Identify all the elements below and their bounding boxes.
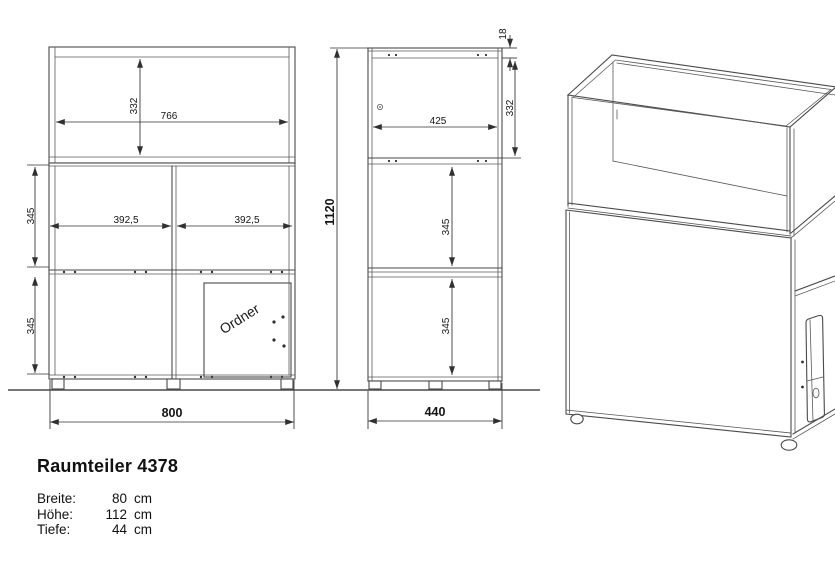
drawing-canvas: Ordner 332 766 345 392,5 392,5 345 800 bbox=[0, 0, 835, 455]
foot bbox=[489, 381, 501, 389]
foot bbox=[781, 440, 797, 450]
side-outline bbox=[368, 48, 502, 381]
foot bbox=[369, 381, 381, 389]
spec-row-hoehe: Höhe: 112 cm bbox=[37, 507, 152, 523]
front-dim-top-height: 332 bbox=[129, 97, 140, 114]
spec-row-tiefe: Tiefe: 44 cm bbox=[37, 522, 152, 538]
front-dim-left-width: 392,5 bbox=[113, 215, 138, 226]
foot bbox=[281, 379, 293, 389]
top-face bbox=[568, 55, 835, 127]
spec-unit: cm bbox=[127, 507, 152, 523]
technical-drawing-page: Ordner 332 766 345 392,5 392,5 345 800 bbox=[0, 0, 835, 567]
side-dim-total-depth: 440 bbox=[425, 405, 446, 419]
foot bbox=[167, 379, 180, 389]
side-dim-inner-depth: 425 bbox=[430, 116, 447, 127]
foot bbox=[571, 414, 583, 424]
spec-value: 112 bbox=[95, 507, 127, 523]
front-dim-middle-height: 345 bbox=[26, 207, 37, 224]
binder bbox=[806, 315, 824, 422]
product-info: Raumteiler 4378 Breite: 80 cm Höhe: 112 … bbox=[37, 456, 178, 538]
side-dim-panel-thickness: 18 bbox=[498, 28, 509, 40]
lower-cabinet-side bbox=[566, 210, 791, 437]
foot bbox=[52, 379, 64, 389]
spec-table: Breite: 80 cm Höhe: 112 cm Tiefe: 44 cm bbox=[37, 491, 152, 538]
spec-label: Höhe: bbox=[37, 507, 95, 523]
page-title: Raumteiler 4378 bbox=[37, 456, 178, 477]
spec-unit: cm bbox=[127, 491, 152, 507]
spec-unit: cm bbox=[127, 522, 152, 538]
front-dim-top-width: 766 bbox=[161, 111, 178, 122]
side-dim-top-height: 332 bbox=[505, 99, 516, 116]
side-dim-lower-height: 345 bbox=[441, 317, 452, 334]
front-dim-right-width: 392,5 bbox=[234, 215, 259, 226]
spec-value: 44 bbox=[95, 522, 127, 538]
front-dim-total-width: 800 bbox=[162, 406, 183, 420]
side-view: 18 332 425 1120 345 345 440 bbox=[323, 28, 521, 429]
spec-row-breite: Breite: 80 cm bbox=[37, 491, 152, 507]
front-view: Ordner 332 766 345 392,5 392,5 345 800 bbox=[26, 47, 295, 429]
side-dim-upper-height: 345 bbox=[441, 218, 452, 235]
side-dim-total-height: 1120 bbox=[323, 198, 337, 225]
perspective-view bbox=[566, 55, 835, 450]
spec-value: 80 bbox=[95, 491, 127, 507]
foot bbox=[429, 381, 442, 389]
spec-label: Breite: bbox=[37, 491, 95, 507]
front-top-box bbox=[49, 47, 295, 163]
front-dim-bottom-height: 345 bbox=[26, 317, 37, 334]
spec-label: Tiefe: bbox=[37, 522, 95, 538]
